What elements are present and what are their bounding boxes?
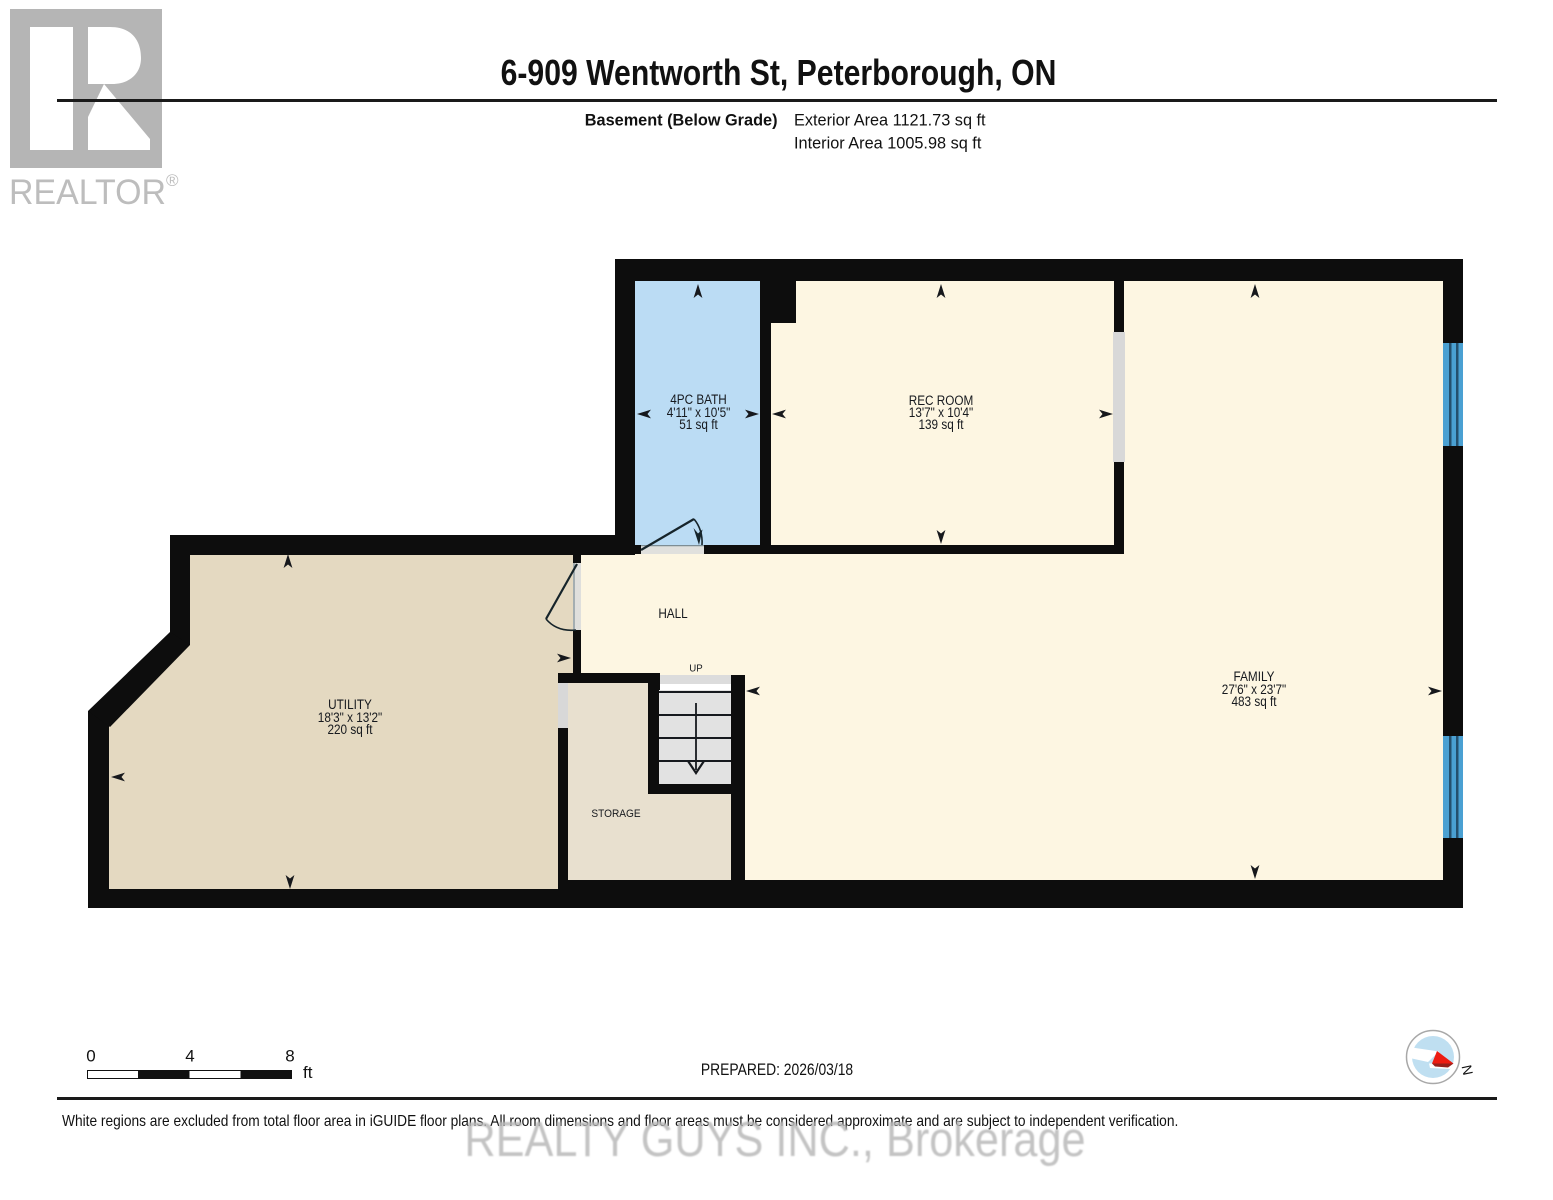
svg-text:8: 8 bbox=[285, 1047, 294, 1066]
svg-text:ft: ft bbox=[303, 1063, 313, 1082]
svg-text:REALTY GUYS INC., Brokerage: REALTY GUYS INC., Brokerage bbox=[464, 1111, 1085, 1166]
svg-text:UP: UP bbox=[689, 663, 703, 674]
svg-text:Interior Area 1005.98 sq ft: Interior Area 1005.98 sq ft bbox=[794, 135, 982, 153]
svg-text:139 sq ft: 139 sq ft bbox=[918, 416, 963, 432]
svg-text:®: ® bbox=[166, 171, 179, 190]
svg-text:PREPARED: 2026/03/18: PREPARED: 2026/03/18 bbox=[701, 1061, 853, 1080]
svg-text:HALL: HALL bbox=[658, 605, 687, 621]
svg-text:Exterior Area 1121.73 sq ft: Exterior Area 1121.73 sq ft bbox=[794, 112, 986, 130]
svg-text:483 sq ft: 483 sq ft bbox=[1231, 693, 1276, 709]
svg-text:51 sq ft: 51 sq ft bbox=[679, 416, 718, 432]
svg-text:0: 0 bbox=[86, 1047, 95, 1066]
svg-text:N: N bbox=[1459, 1063, 1477, 1076]
svg-text:STORAGE: STORAGE bbox=[591, 808, 640, 820]
svg-text:220 sq ft: 220 sq ft bbox=[327, 721, 372, 737]
svg-text:REALTOR: REALTOR bbox=[9, 173, 166, 212]
svg-text:6-909 Wentworth St, Peterborou: 6-909 Wentworth St, Peterborough, ON bbox=[501, 54, 1057, 94]
svg-text:4: 4 bbox=[185, 1047, 194, 1066]
svg-text:Basement (Below Grade): Basement (Below Grade) bbox=[585, 112, 778, 130]
